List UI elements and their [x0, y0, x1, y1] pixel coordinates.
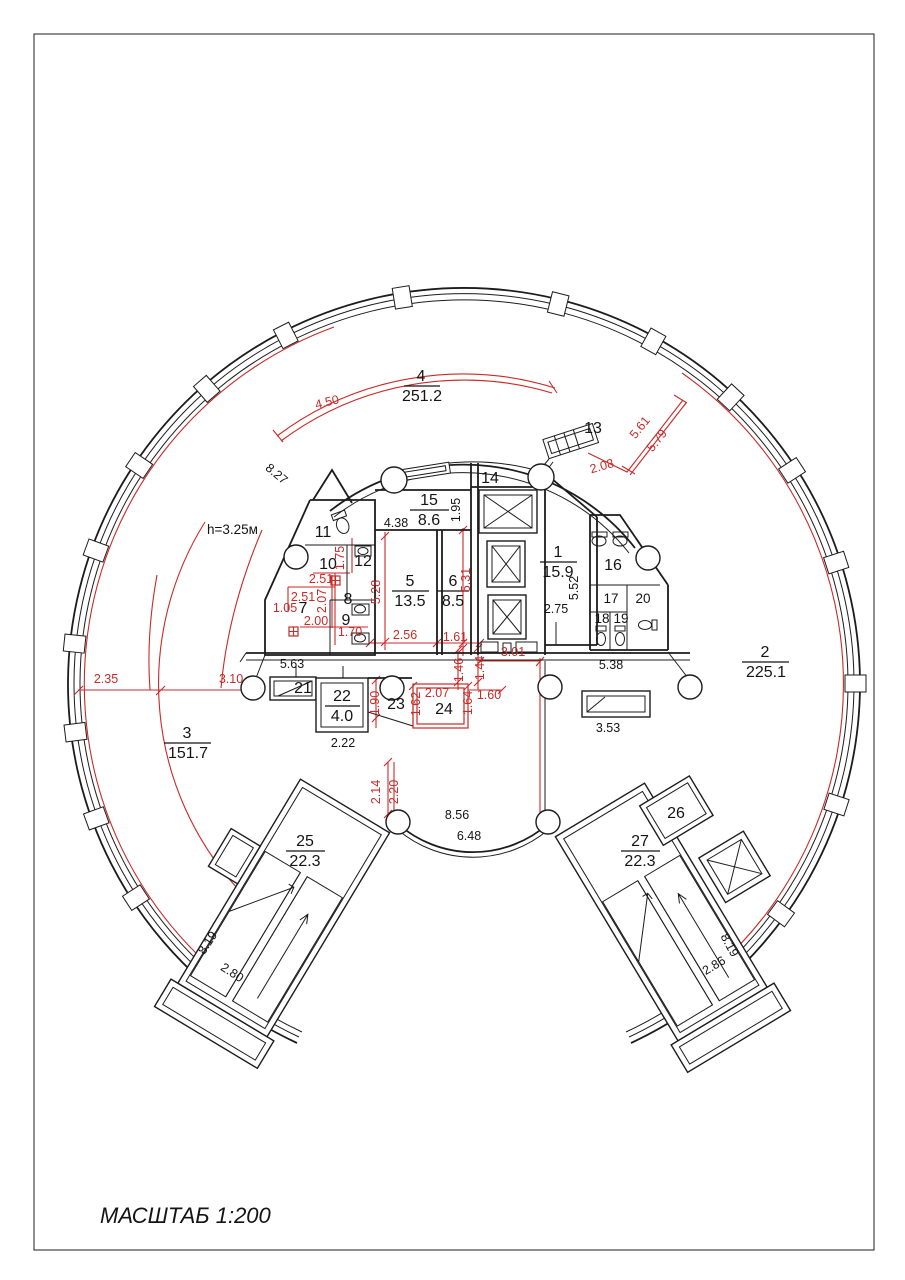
- dim-5-61: 5.61: [627, 414, 653, 442]
- room-18-number: 18: [594, 611, 609, 626]
- room-3-number: 3: [183, 725, 192, 742]
- room-16-number: 16: [604, 557, 622, 574]
- room-21-number: 21: [294, 680, 312, 697]
- room-3-area: 151.7: [168, 745, 208, 762]
- room-25-number: 25: [296, 833, 314, 850]
- room-5-number: 5: [406, 573, 415, 590]
- dim-1-75: 1.75: [333, 546, 347, 570]
- room-26-number: 26: [667, 805, 685, 822]
- height-note: h=3.25м: [207, 522, 258, 537]
- dim-5-38: 5.38: [599, 658, 623, 672]
- room-27-area: 22.3: [624, 853, 655, 870]
- dim-1-46: 1.46: [452, 658, 466, 682]
- dim-2-75: 2.75: [544, 602, 568, 616]
- lower-rooms: [270, 677, 650, 732]
- dim-1-60: 1.60: [477, 688, 501, 702]
- dim-2-56: 2.56: [393, 628, 417, 642]
- room-24-number: 24: [435, 701, 453, 718]
- floor-plan: 4 251.2 2 225.1 3 151.7 1 15.9 15 8.6 5 …: [0, 0, 905, 1280]
- room-11-number: 11: [315, 524, 332, 541]
- room-20-number: 20: [635, 591, 650, 606]
- room-6-area: 8.5: [442, 593, 464, 610]
- scale-label: МАСШТАБ 1:200: [100, 1203, 272, 1228]
- dim-1-05: 1.05: [273, 601, 297, 615]
- dim-1-62: 1.62: [409, 692, 423, 716]
- room-27-number: 27: [631, 833, 649, 850]
- room-8-number: 8: [344, 591, 353, 608]
- dim-1-70: 1.70: [338, 625, 362, 639]
- dim-5-52: 5.52: [567, 576, 581, 600]
- dim-8-27: 8.27: [263, 461, 291, 487]
- room-2-area: 225.1: [746, 664, 786, 681]
- room-5-area: 13.5: [394, 593, 425, 610]
- dim-1-90: 1.90: [368, 691, 382, 715]
- dim-3-10: 3.10: [219, 672, 243, 686]
- room-19-number: 19: [613, 611, 628, 626]
- dim-2-51-a: 2.51: [309, 572, 333, 586]
- room-4-area: 251.2: [402, 388, 442, 405]
- room-12-number: 12: [354, 553, 372, 570]
- dim-4-38: 4.38: [384, 516, 408, 530]
- dim-8-56: 8.56: [445, 808, 469, 822]
- room-6-number: 6: [449, 573, 458, 590]
- room-14-number: 14: [481, 470, 499, 487]
- dim-5-63: 5.63: [280, 657, 304, 671]
- room-2-number: 2: [761, 644, 770, 661]
- room-22-number: 22: [333, 688, 351, 705]
- dim-4-50: 4.50: [314, 392, 341, 411]
- dim-2-00: 2.00: [304, 614, 328, 628]
- room-22-area: 4.0: [331, 708, 353, 725]
- room-15-area: 8.6: [418, 512, 440, 529]
- room-23-number: 23: [387, 696, 405, 713]
- room-4-number: 4: [417, 368, 426, 385]
- dim-2-20: 2.20: [387, 780, 401, 804]
- dim-2-07-a: 2.07: [315, 589, 329, 613]
- dim-5-28: 5.28: [369, 580, 383, 604]
- room-25-area: 22.3: [289, 853, 320, 870]
- dim-3-53: 3.53: [596, 721, 620, 735]
- room-13-number: 13: [584, 420, 602, 437]
- room-1-number: 1: [554, 544, 563, 561]
- dim-1-44: 1.44: [473, 656, 487, 680]
- dim-5-31: 5.31: [459, 568, 473, 592]
- dim-2-08: 2.08: [588, 456, 615, 476]
- reception-desk: [582, 691, 650, 717]
- dim-6-48: 6.48: [457, 829, 481, 843]
- room-15-number: 15: [420, 492, 438, 509]
- room-17-number: 17: [603, 591, 618, 606]
- dim-1-61: 1.61: [443, 630, 467, 644]
- dim-2-35: 2.35: [94, 672, 118, 686]
- stair-tower-left: [132, 762, 396, 1069]
- dim-2-14: 2.14: [369, 780, 383, 804]
- toilet-icon: [331, 510, 352, 535]
- dim-1-95: 1.95: [449, 498, 463, 522]
- dim-3-01: 3.01: [501, 645, 525, 659]
- dim-2-07-b: 2.07: [425, 686, 449, 700]
- dim-2-22: 2.22: [331, 736, 355, 750]
- dim-1-64: 1.64: [461, 691, 475, 715]
- dim-5-79: 5.79: [644, 427, 670, 455]
